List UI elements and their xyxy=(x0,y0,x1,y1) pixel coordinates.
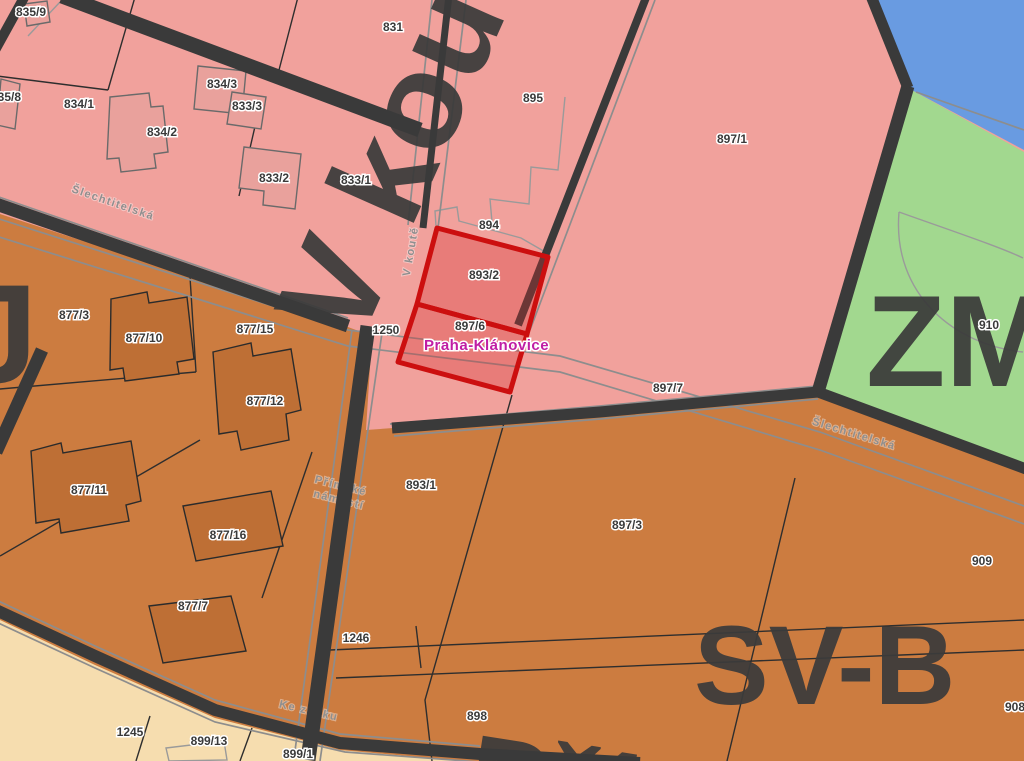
parcel-label: 834/3 xyxy=(207,77,237,91)
parcel-label: 897/6 xyxy=(455,319,485,333)
zoning-map-canvas[interactable]: ŠlechtitelskáŠlechtitelskáV koutěKe znak… xyxy=(0,0,1024,761)
parcel-label: 834/2 xyxy=(147,125,177,139)
map-viewport[interactable]: ŠlechtitelskáŠlechtitelskáV koutěKe znak… xyxy=(0,0,1024,761)
parcel-label: 893/2 xyxy=(469,268,499,282)
parcel-label: 893/1 xyxy=(406,478,436,492)
parcel-label: 834/1 xyxy=(64,97,94,111)
parcel-label: 898 xyxy=(467,709,487,723)
parcel-label: 833/1 xyxy=(341,173,371,187)
parcel-label: 1250 xyxy=(373,323,400,337)
station-label: Praha-Klánovice xyxy=(424,337,549,354)
parcel-label: 833/2 xyxy=(259,171,289,185)
parcel-label: 835/8 xyxy=(0,90,21,104)
parcel-label: 897/7 xyxy=(653,381,683,395)
parcel-label: 833/3 xyxy=(232,99,262,113)
parcel-label: 877/3 xyxy=(59,308,89,322)
parcel-label: 908 xyxy=(1005,700,1024,714)
parcel-label: 895 xyxy=(523,91,543,105)
parcel-label: 909 xyxy=(972,554,992,568)
parcel-label: 897/1 xyxy=(717,132,747,146)
giant-label: J xyxy=(0,255,38,412)
parcel-label: 877/15 xyxy=(237,322,274,336)
parcel-label: 831 xyxy=(383,20,403,34)
parcel-label: 877/7 xyxy=(178,599,208,613)
parcel-label: 899/13 xyxy=(191,734,228,748)
parcel-label: 835/9 xyxy=(16,5,46,19)
parcel-label: 1246 xyxy=(343,631,370,645)
parcel-label: 894 xyxy=(479,218,499,232)
parcel-label: 910 xyxy=(979,318,999,332)
parcel-label: 1245 xyxy=(117,725,144,739)
giant-label: ZM xyxy=(866,268,1024,414)
parcel-label: 877/10 xyxy=(126,331,163,345)
parcel-label: 877/11 xyxy=(71,483,107,497)
parcel-label: 899/1 xyxy=(283,747,313,761)
parcel-label: 897/3 xyxy=(612,518,642,532)
parcel-label: 877/16 xyxy=(210,528,247,542)
giant-label: SV-B xyxy=(694,603,955,728)
parcel-label: 877/12 xyxy=(247,394,284,408)
